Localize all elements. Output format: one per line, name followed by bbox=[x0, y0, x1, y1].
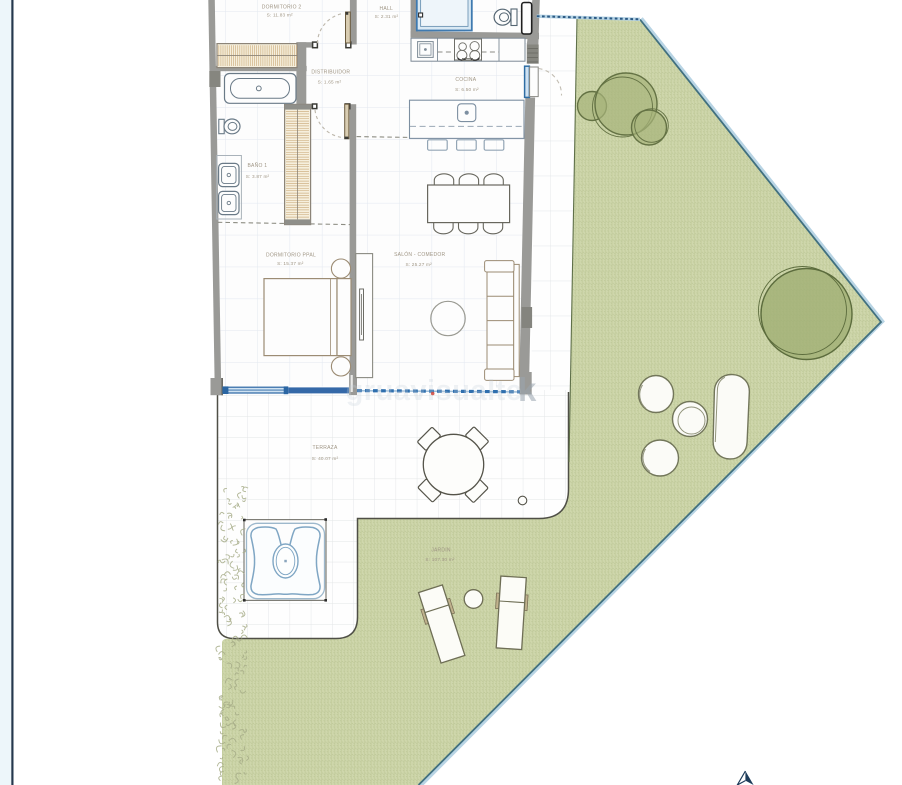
svg-text:S: 1.65 m²: S: 1.65 m² bbox=[318, 79, 342, 84]
svg-text:DORMITORIO 2: DORMITORIO 2 bbox=[262, 5, 302, 11]
svg-text:S: 25.27 m²: S: 25.27 m² bbox=[405, 262, 432, 267]
svg-text:S: 15.37 m²: S: 15.37 m² bbox=[277, 261, 304, 266]
svg-text:SALÓN - COMEDOR: SALÓN - COMEDOR bbox=[394, 251, 445, 258]
svg-text:BAÑO 1: BAÑO 1 bbox=[247, 162, 267, 169]
svg-text:S: 3.87 m²: S: 3.87 m² bbox=[246, 174, 270, 179]
svg-text:S: 6.50 m²: S: 6.50 m² bbox=[455, 87, 479, 92]
svg-text:S: 107.30 m²: S: 107.30 m² bbox=[425, 557, 454, 562]
svg-text:JARDIN: JARDIN bbox=[431, 548, 451, 554]
svg-text:COCINA: COCINA bbox=[455, 77, 476, 83]
svg-text:gruavisualte: gruavisualte bbox=[346, 375, 523, 407]
svg-text:HALL: HALL bbox=[380, 6, 394, 12]
svg-text:DISTRIBUIDOR: DISTRIBUIDOR bbox=[311, 70, 350, 76]
svg-text:k: k bbox=[518, 371, 537, 408]
svg-text:S: 11.83 m²: S: 11.83 m² bbox=[267, 12, 293, 17]
svg-text:S: 2.31 m²: S: 2.31 m² bbox=[375, 14, 399, 19]
svg-text:DORMITORIO PPAL: DORMITORIO PPAL bbox=[266, 253, 316, 259]
svg-text:TERRAZA: TERRAZA bbox=[312, 445, 338, 451]
svg-text:S: 40.07 m²: S: 40.07 m² bbox=[312, 456, 339, 461]
